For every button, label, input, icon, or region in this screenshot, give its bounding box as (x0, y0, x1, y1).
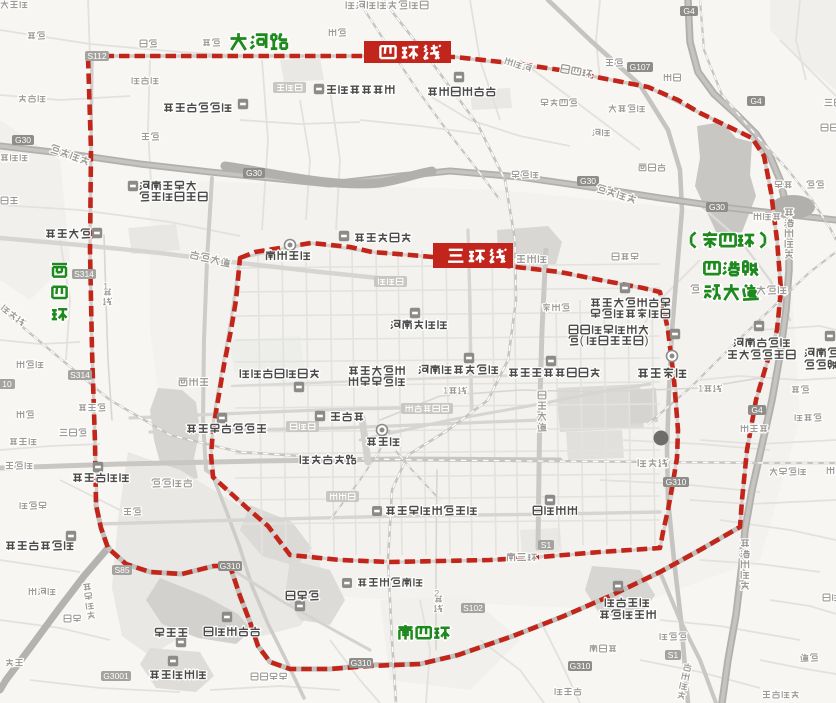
svg-text:(: ( (580, 334, 584, 347)
svg-text:G4: G4 (683, 6, 695, 16)
svg-text:G3001: G3001 (103, 671, 129, 681)
svg-text:G30: G30 (709, 202, 725, 212)
svg-text:G4: G4 (751, 405, 763, 415)
svg-text:S1: S1 (668, 650, 679, 660)
svg-text:1: 1 (443, 385, 448, 396)
svg-text:S314: S314 (74, 269, 94, 279)
svg-text:S85: S85 (114, 565, 129, 575)
svg-text:G4: G4 (750, 96, 762, 106)
svg-text:10: 10 (2, 379, 12, 389)
svg-text:1: 1 (103, 281, 108, 292)
svg-text:S1: S1 (541, 540, 552, 550)
svg-text:S112: S112 (87, 51, 106, 61)
svg-text:G107: G107 (630, 62, 651, 72)
svg-text:S102: S102 (463, 603, 483, 613)
svg-text:G310: G310 (220, 561, 241, 571)
svg-text:S314: S314 (70, 370, 90, 380)
svg-text:1: 1 (698, 383, 703, 394)
svg-text:): ) (645, 334, 649, 347)
svg-text:G310: G310 (666, 477, 687, 487)
svg-text:2: 2 (434, 588, 439, 599)
svg-text:G310: G310 (351, 658, 372, 668)
svg-text:G30: G30 (580, 176, 596, 186)
svg-text:G30: G30 (15, 135, 31, 145)
svg-text:G30: G30 (246, 168, 262, 178)
svg-text:G310: G310 (570, 661, 591, 671)
